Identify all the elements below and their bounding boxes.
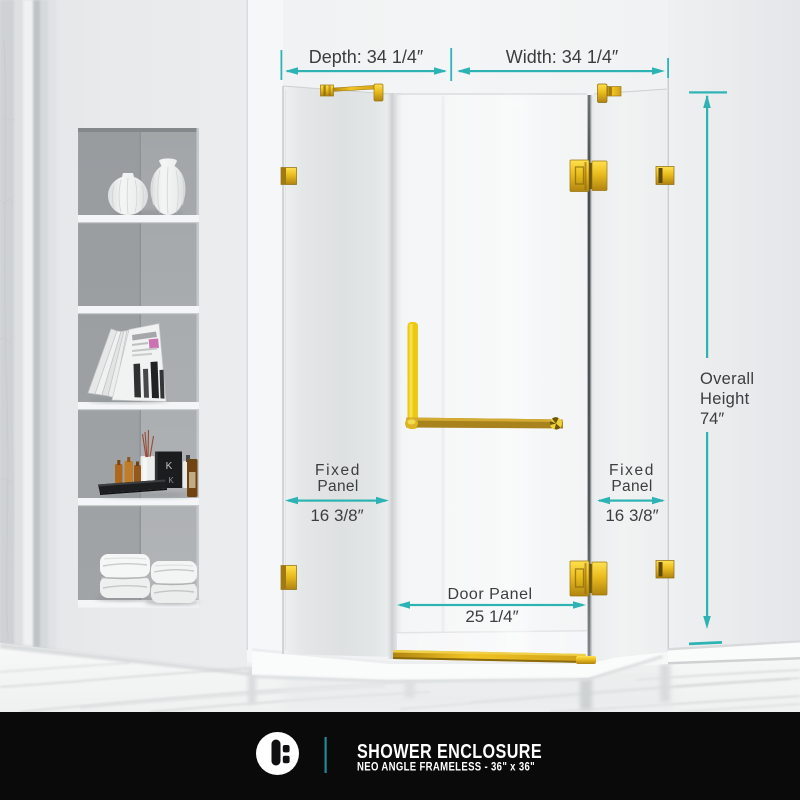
svg-text:K: K bbox=[166, 461, 173, 472]
svg-text:Fixed: Fixed bbox=[609, 462, 655, 479]
svg-text:K: K bbox=[168, 476, 174, 485]
svg-text:Door Panel: Door Panel bbox=[447, 586, 532, 603]
svg-text:Panel: Panel bbox=[317, 478, 358, 495]
svg-text:Height: Height bbox=[700, 390, 750, 408]
svg-text:NEO ANGLE FRAMELESS - 36" x 36: NEO ANGLE FRAMELESS - 36" x 36" bbox=[357, 762, 535, 774]
svg-text:SHOWER ENCLOSURE: SHOWER ENCLOSURE bbox=[357, 740, 542, 763]
svg-text:Panel: Panel bbox=[611, 478, 652, 495]
svg-text:Width: 34 1/4″: Width: 34 1/4″ bbox=[506, 47, 619, 67]
svg-text:Fixed: Fixed bbox=[315, 462, 361, 479]
svg-text:16 3/8″: 16 3/8″ bbox=[605, 506, 658, 525]
svg-text:16 3/8″: 16 3/8″ bbox=[310, 506, 363, 525]
svg-text:25 1/4″: 25 1/4″ bbox=[465, 607, 518, 626]
svg-text:Overall: Overall bbox=[700, 370, 754, 388]
svg-text:Depth: 34 1/4″: Depth: 34 1/4″ bbox=[309, 47, 424, 67]
svg-text:74″: 74″ bbox=[700, 410, 724, 428]
